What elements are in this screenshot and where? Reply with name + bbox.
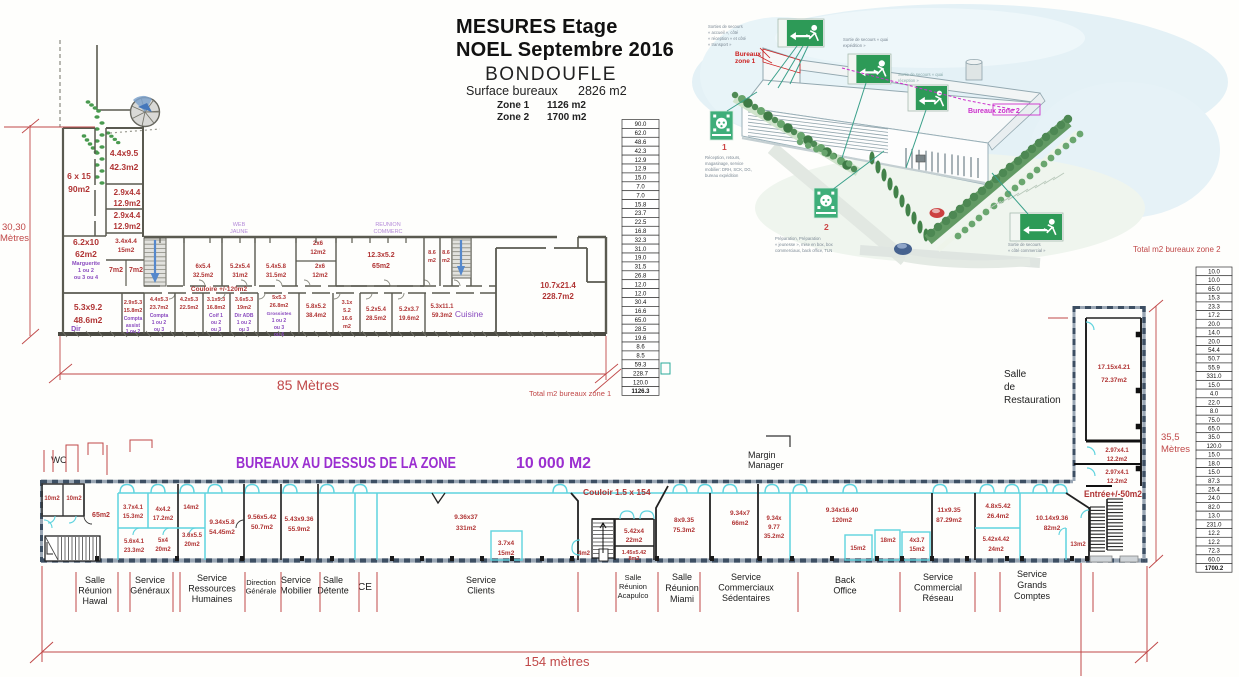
svg-text:5.8x5.2: 5.8x5.2 — [306, 304, 327, 310]
svg-text:Service: Service — [135, 575, 165, 585]
svg-text:120m2: 120m2 — [832, 517, 853, 524]
svg-text:17.2: 17.2 — [1208, 313, 1220, 319]
svg-text:Réunion: Réunion — [619, 582, 647, 591]
svg-text:50.7: 50.7 — [1208, 357, 1220, 363]
svg-text:15.8m2: 15.8m2 — [124, 308, 143, 314]
svg-text:20m2: 20m2 — [184, 542, 200, 548]
svg-text:6x5.4: 6x5.4 — [195, 264, 211, 270]
svg-text:Service: Service — [923, 572, 953, 582]
svg-text:8.0: 8.0 — [1210, 409, 1219, 415]
svg-text:7m2: 7m2 — [109, 267, 123, 274]
svg-text:1700 m2: 1700 m2 — [547, 112, 587, 123]
svg-text:2826 m2: 2826 m2 — [578, 84, 627, 98]
svg-text:5.4x5.8: 5.4x5.8 — [266, 264, 287, 270]
svg-text:15.0: 15.0 — [635, 176, 647, 182]
svg-text:12.9m2: 12.9m2 — [113, 199, 141, 208]
svg-text:4m2: 4m2 — [578, 551, 591, 557]
svg-text:8.6: 8.6 — [442, 250, 450, 256]
svg-text:2.97x4.1: 2.97x4.1 — [1105, 448, 1129, 454]
svg-text:65.0: 65.0 — [635, 318, 647, 324]
svg-text:16.8: 16.8 — [635, 229, 647, 235]
svg-text:ou 3: ou 3 — [211, 327, 221, 333]
svg-text:5.2x3.7: 5.2x3.7 — [399, 307, 420, 313]
svg-text:Service: Service — [1017, 569, 1047, 579]
svg-text:19.6: 19.6 — [635, 336, 647, 342]
svg-text:2.9x4.4: 2.9x4.4 — [114, 188, 141, 197]
svg-text:m2: m2 — [442, 258, 450, 264]
svg-text:9.34x: 9.34x — [766, 516, 782, 522]
svg-text:1126.3: 1126.3 — [631, 389, 650, 395]
svg-text:ou 3: ou 3 — [239, 327, 249, 333]
svg-text:15.3: 15.3 — [1208, 296, 1220, 302]
svg-text:13m2: 13m2 — [1070, 542, 1086, 548]
svg-text:Clients: Clients — [467, 586, 495, 596]
svg-text:zone 1: zone 1 — [735, 58, 756, 65]
svg-text:65.0: 65.0 — [1208, 427, 1220, 433]
svg-text:« réception » et côté: « réception » et côté — [708, 36, 747, 41]
svg-text:magasinage, service: magasinage, service — [705, 161, 744, 166]
svg-text:Mètres: Mètres — [1161, 444, 1190, 455]
svg-text:7.0: 7.0 — [636, 185, 645, 191]
svg-text:32.5m2: 32.5m2 — [193, 273, 214, 279]
svg-text:12.9: 12.9 — [635, 167, 647, 173]
svg-text:30,30: 30,30 — [2, 222, 26, 233]
svg-text:10.0: 10.0 — [1208, 278, 1220, 284]
svg-text:16.8m2: 16.8m2 — [207, 305, 226, 311]
svg-text:bureau expédition: bureau expédition — [705, 173, 739, 178]
svg-text:9.56x5.42: 9.56x5.42 — [248, 514, 277, 521]
svg-text:31.5m2: 31.5m2 — [266, 273, 287, 279]
svg-text:14.0: 14.0 — [1208, 331, 1220, 337]
svg-text:Couloire +/-120m2: Couloire +/-120m2 — [191, 286, 248, 293]
svg-text:16.6: 16.6 — [342, 316, 353, 322]
svg-text:Total m2 bureaux zone 2: Total m2 bureaux zone 2 — [1133, 245, 1221, 254]
svg-text:Salle: Salle — [1004, 369, 1027, 380]
svg-text:WEB: WEB — [233, 222, 246, 228]
svg-text:2x6: 2x6 — [313, 241, 324, 247]
svg-text:NOEL Septembre 2016: NOEL Septembre 2016 — [456, 39, 674, 61]
svg-text:Mobilier: Mobilier — [280, 586, 312, 596]
svg-text:23.7: 23.7 — [635, 211, 647, 217]
svg-text:3.1x5.3: 3.1x5.3 — [207, 297, 225, 303]
svg-text:COMMERC: COMMERC — [373, 229, 402, 235]
svg-text:ou 3 ou 4: ou 3 ou 4 — [74, 275, 99, 281]
svg-text:87.29m2: 87.29m2 — [936, 517, 962, 524]
svg-text:12m2: 12m2 — [312, 273, 328, 279]
svg-text:15m2: 15m2 — [850, 546, 866, 552]
svg-text:Réception, retours,: Réception, retours, — [705, 155, 740, 160]
svg-text:20.0: 20.0 — [1208, 339, 1220, 345]
svg-text:4.0: 4.0 — [1210, 392, 1219, 398]
svg-text:Réunion: Réunion — [78, 586, 112, 596]
svg-text:82m2: 82m2 — [1044, 525, 1061, 532]
svg-text:3.7x4.1: 3.7x4.1 — [123, 505, 144, 511]
svg-text:15.8: 15.8 — [635, 202, 647, 208]
svg-text:54.4: 54.4 — [1208, 348, 1220, 354]
svg-text:14m2: 14m2 — [183, 505, 199, 511]
svg-text:18m2: 18m2 — [880, 538, 896, 544]
svg-text:1 ou 2: 1 ou 2 — [272, 318, 287, 324]
svg-text:2: 2 — [824, 222, 829, 232]
svg-text:Grands: Grands — [1017, 580, 1047, 590]
svg-text:Back: Back — [835, 575, 856, 585]
svg-text:8m2: 8m2 — [628, 556, 639, 562]
svg-text:1700.2: 1700.2 — [1205, 566, 1224, 572]
svg-text:22.0: 22.0 — [1208, 400, 1220, 406]
svg-text:9.36x37: 9.36x37 — [454, 514, 478, 521]
svg-text:30.4: 30.4 — [635, 300, 647, 306]
svg-text:54.45m2: 54.45m2 — [209, 529, 235, 536]
svg-text:28.5m2: 28.5m2 — [366, 316, 387, 322]
svg-text:120.0: 120.0 — [633, 380, 649, 386]
svg-text:90m2: 90m2 — [68, 184, 90, 194]
svg-text:23.3m2: 23.3m2 — [124, 548, 145, 554]
svg-text:Zone 2: Zone 2 — [497, 112, 530, 123]
svg-text:1 ou 2: 1 ou 2 — [152, 320, 167, 326]
svg-text:Dir: Dir — [71, 326, 81, 333]
svg-text:75.0: 75.0 — [1208, 418, 1220, 424]
svg-text:59.3m2: 59.3m2 — [432, 313, 453, 319]
svg-text:Préparation, Préparation: Préparation, Préparation — [775, 236, 821, 241]
svg-text:4x3.7: 4x3.7 — [909, 538, 925, 544]
svg-text:Service: Service — [466, 575, 496, 585]
svg-text:Salle: Salle — [85, 575, 105, 585]
svg-text:5.3x11.1: 5.3x11.1 — [430, 304, 454, 310]
svg-text:48.6m2: 48.6m2 — [74, 315, 103, 325]
svg-text:Généraux: Généraux — [130, 586, 170, 596]
svg-text:9.34x5.8: 9.34x5.8 — [209, 519, 235, 526]
svg-text:Salle: Salle — [323, 575, 343, 585]
svg-text:32.3: 32.3 — [635, 238, 647, 244]
svg-text:31m2: 31m2 — [232, 273, 248, 279]
svg-text:5.43x9.36: 5.43x9.36 — [285, 516, 314, 523]
svg-text:12.2m2: 12.2m2 — [1107, 457, 1128, 463]
svg-text:12m2: 12m2 — [310, 250, 326, 256]
svg-text:9.77: 9.77 — [768, 525, 780, 531]
svg-text:20m2: 20m2 — [155, 547, 171, 553]
svg-text:BUREAUX AU DESSUS DE LA ZONE: BUREAUX AU DESSUS DE LA ZONE — [236, 455, 456, 472]
svg-text:15m2: 15m2 — [909, 547, 925, 553]
svg-text:Restauration: Restauration — [1004, 395, 1061, 406]
svg-text:Comptes: Comptes — [1014, 591, 1051, 601]
svg-text:31.0: 31.0 — [635, 247, 647, 253]
svg-text:MESURES Etage: MESURES Etage — [456, 16, 618, 38]
svg-text:4.4x5.3: 4.4x5.3 — [150, 297, 168, 303]
svg-text:6 x 15: 6 x 15 — [67, 171, 91, 181]
svg-text:31.5: 31.5 — [635, 265, 647, 271]
svg-text:11x9.35: 11x9.35 — [937, 507, 961, 514]
svg-text:19.0: 19.0 — [635, 256, 647, 262]
svg-text:48.6: 48.6 — [635, 140, 647, 146]
svg-text:17.15x4.21: 17.15x4.21 — [1098, 364, 1131, 371]
svg-text:5.2x5.4: 5.2x5.4 — [366, 307, 387, 313]
svg-text:90.0: 90.0 — [635, 122, 647, 128]
svg-text:3.7x4: 3.7x4 — [498, 540, 515, 547]
svg-text:15m2: 15m2 — [118, 247, 135, 254]
svg-text:20.0: 20.0 — [1208, 322, 1220, 328]
svg-text:1: 1 — [722, 142, 727, 152]
svg-text:Humaines: Humaines — [192, 594, 233, 604]
svg-text:3.6x5.5: 3.6x5.5 — [182, 533, 203, 539]
svg-text:3.1x: 3.1x — [342, 300, 354, 306]
svg-text:« accueil », côté: « accueil », côté — [708, 30, 739, 35]
svg-text:26.4m2: 26.4m2 — [987, 513, 1009, 520]
svg-text:8.5: 8.5 — [636, 354, 645, 360]
svg-text:2.9x4.4: 2.9x4.4 — [114, 211, 141, 220]
svg-text:Entrée+/-50m2: Entrée+/-50m2 — [1084, 489, 1142, 499]
svg-text:Surface bureaux: Surface bureaux — [466, 84, 558, 98]
svg-text:23.3: 23.3 — [1208, 304, 1220, 310]
svg-text:Coif 1: Coif 1 — [209, 313, 223, 319]
svg-text:9.34x7: 9.34x7 — [730, 510, 750, 517]
svg-text:10 000 M2: 10 000 M2 — [516, 455, 591, 472]
svg-text:82.0: 82.0 — [1208, 505, 1220, 511]
svg-text:331m2: 331m2 — [456, 525, 477, 532]
svg-text:55.9: 55.9 — [1208, 365, 1220, 371]
svg-text:Mètres: Mètres — [0, 233, 29, 244]
svg-text:228.7: 228.7 — [633, 371, 649, 377]
svg-text:8.6: 8.6 — [636, 345, 645, 351]
svg-text:3.4x4.4: 3.4x4.4 — [115, 238, 137, 245]
svg-text:16.6: 16.6 — [635, 309, 647, 315]
svg-text:Sortie de secours « quai: Sortie de secours « quai — [898, 72, 943, 77]
svg-text:Sortie de secours: Sortie de secours — [1008, 242, 1041, 247]
svg-text:Générale: Générale — [246, 587, 277, 596]
svg-text:Compta: Compta — [124, 316, 143, 322]
svg-text:12.2: 12.2 — [1208, 540, 1220, 546]
svg-text:75.3m2: 75.3m2 — [673, 527, 695, 534]
svg-text:Couloir 1.5 x 154: Couloir 1.5 x 154 — [583, 487, 651, 497]
svg-text:22.5m2: 22.5m2 — [180, 305, 199, 311]
svg-text:65.0: 65.0 — [1208, 287, 1220, 293]
svg-text:Office: Office — [833, 586, 856, 596]
svg-text:22.5: 22.5 — [635, 220, 647, 226]
svg-text:2x6: 2x6 — [315, 264, 326, 270]
svg-text:55.9m2: 55.9m2 — [288, 526, 310, 533]
svg-text:Sortie de secours « quai: Sortie de secours « quai — [843, 37, 888, 42]
svg-text:Cuisine: Cuisine — [455, 309, 484, 319]
svg-text:7m2: 7m2 — [129, 267, 143, 274]
svg-text:62.0: 62.0 — [635, 131, 647, 137]
svg-text:Bureaux: Bureaux — [735, 51, 761, 58]
svg-text:CE: CE — [358, 582, 372, 593]
svg-text:26.8: 26.8 — [635, 274, 647, 280]
svg-text:50.7m2: 50.7m2 — [251, 524, 273, 531]
svg-text:42.3: 42.3 — [635, 149, 647, 155]
svg-text:10.7x21.4: 10.7x21.4 — [540, 281, 576, 290]
svg-text:4x4.2: 4x4.2 — [155, 507, 171, 513]
svg-text:ou 6: ou 6 — [274, 332, 284, 338]
svg-text:6.2x10: 6.2x10 — [73, 237, 99, 247]
svg-text:5x5.3: 5x5.3 — [272, 295, 286, 301]
svg-text:ou 3: ou 3 — [274, 325, 284, 331]
svg-text:24m2: 24m2 — [988, 547, 1004, 553]
svg-text:m2: m2 — [343, 324, 351, 330]
svg-text:Service: Service — [281, 575, 311, 585]
svg-text:Acapulco: Acapulco — [618, 591, 649, 600]
svg-text:17.2m2: 17.2m2 — [153, 516, 174, 522]
svg-text:Grossistes: Grossistes — [267, 311, 292, 317]
svg-text:Sorties de secours: Sorties de secours — [708, 24, 743, 29]
svg-text:m2: m2 — [428, 258, 436, 264]
svg-text:35,5: 35,5 — [1161, 432, 1180, 443]
svg-text:Réunion: Réunion — [665, 583, 699, 593]
svg-text:Détente: Détente — [317, 586, 349, 596]
svg-text:5.42x4.42: 5.42x4.42 — [983, 537, 1010, 543]
svg-text:12.9m2: 12.9m2 — [113, 222, 141, 231]
svg-text:72.3: 72.3 — [1208, 549, 1220, 555]
svg-text:22m2: 22m2 — [626, 537, 643, 544]
svg-text:ou 3: ou 3 — [154, 327, 164, 333]
svg-text:ou 2: ou 2 — [211, 320, 221, 326]
svg-text:19m2: 19m2 — [237, 305, 251, 311]
svg-text:BONDOUFLE: BONDOUFLE — [485, 64, 617, 85]
svg-text:Margin: Margin — [748, 450, 776, 460]
svg-text:66m2: 66m2 — [732, 520, 749, 527]
svg-text:Commerciaux: Commerciaux — [718, 583, 774, 593]
svg-text:35.0: 35.0 — [1208, 435, 1220, 441]
svg-text:15.0: 15.0 — [1208, 453, 1220, 459]
svg-text:5.2: 5.2 — [343, 308, 351, 314]
svg-text:65m2: 65m2 — [92, 512, 110, 519]
svg-text:Dir ADB: Dir ADB — [235, 313, 254, 319]
svg-text:15m2: 15m2 — [498, 550, 515, 557]
svg-text:4.4x9.5: 4.4x9.5 — [110, 148, 139, 158]
svg-text:15.0: 15.0 — [1208, 470, 1220, 476]
svg-text:12.2: 12.2 — [1208, 531, 1220, 537]
svg-text:42.3m2: 42.3m2 — [110, 162, 139, 172]
svg-text:4.8x5.42: 4.8x5.42 — [985, 503, 1011, 510]
svg-text:2.9x5.3: 2.9x5.3 — [124, 300, 142, 306]
svg-text:9.34x16.40: 9.34x16.40 — [826, 507, 859, 514]
svg-text:18.0: 18.0 — [1208, 461, 1220, 467]
svg-text:Salle: Salle — [672, 572, 692, 582]
svg-text:1 ou 2: 1 ou 2 — [237, 320, 252, 326]
svg-text:2.97x4.1: 2.97x4.1 — [1105, 470, 1129, 476]
svg-text:120.0: 120.0 — [1206, 444, 1222, 450]
svg-text:Miami: Miami — [670, 594, 694, 604]
svg-text:85 Mètres: 85 Mètres — [277, 377, 339, 393]
svg-text:3.6x5.3: 3.6x5.3 — [235, 297, 253, 303]
svg-text:12.9: 12.9 — [635, 158, 647, 164]
svg-text:12.3x5.2: 12.3x5.2 — [367, 252, 394, 259]
svg-text:Service: Service — [731, 572, 761, 582]
svg-text:25.4: 25.4 — [1208, 488, 1220, 494]
svg-text:5.6x4.1: 5.6x4.1 — [124, 539, 145, 545]
svg-text:13.0: 13.0 — [1208, 514, 1220, 520]
svg-text:15.3m2: 15.3m2 — [123, 514, 144, 520]
svg-text:Ressources: Ressources — [188, 584, 236, 594]
svg-text:72.37m2: 72.37m2 — [1101, 377, 1127, 384]
svg-text:87.3: 87.3 — [1208, 479, 1220, 485]
svg-text:de: de — [1004, 382, 1016, 393]
svg-text:REUNION: REUNION — [375, 222, 400, 228]
svg-text:7.0: 7.0 — [636, 193, 645, 199]
svg-text:1126 m2: 1126 m2 — [547, 100, 586, 111]
svg-text:Marguerite: Marguerite — [72, 261, 100, 267]
svg-text:mobilier: DRH, SCK, DG,: mobilier: DRH, SCK, DG, — [705, 167, 752, 172]
svg-text:5x4: 5x4 — [158, 538, 169, 544]
svg-text:59.3: 59.3 — [635, 363, 647, 369]
svg-text:Manager: Manager — [748, 460, 784, 470]
svg-text:1 ou 2: 1 ou 2 — [78, 268, 94, 274]
svg-text:15.0: 15.0 — [1208, 383, 1220, 389]
svg-text:331.0: 331.0 — [1206, 374, 1222, 380]
svg-text:12.0: 12.0 — [635, 282, 647, 288]
svg-text:231.0: 231.0 — [1206, 522, 1222, 528]
svg-text:Réseau: Réseau — [922, 593, 953, 603]
svg-text:24.0: 24.0 — [1208, 496, 1220, 502]
svg-text:4.2x5.3: 4.2x5.3 — [180, 297, 198, 303]
svg-text:expédition »: expédition » — [843, 43, 866, 48]
svg-text:« jeunesse », mise en box, box: « jeunesse », mise en box, box — [775, 242, 834, 247]
svg-text:38.4m2: 38.4m2 — [306, 313, 327, 319]
svg-text:12.0: 12.0 — [635, 291, 647, 297]
svg-text:35.2m2: 35.2m2 — [764, 534, 785, 540]
svg-text:5.2x5.4: 5.2x5.4 — [230, 264, 251, 270]
svg-text:28.5: 28.5 — [635, 327, 647, 333]
svg-text:Commercial: Commercial — [914, 583, 962, 593]
svg-text:10.14x9.36: 10.14x9.36 — [1036, 515, 1069, 522]
svg-text:Service: Service — [197, 573, 227, 583]
svg-text:Zone 1: Zone 1 — [497, 100, 530, 111]
svg-text:Hawal: Hawal — [82, 596, 107, 606]
svg-text:JAUNE: JAUNE — [230, 229, 248, 235]
svg-text:8.6: 8.6 — [428, 250, 436, 256]
svg-text:Compta: Compta — [150, 313, 169, 319]
svg-text:10m2: 10m2 — [44, 496, 60, 502]
svg-text:5.42x4: 5.42x4 — [624, 528, 644, 535]
svg-text:60.0: 60.0 — [1208, 557, 1220, 563]
svg-text:commerciaux, back office, TLN: commerciaux, back office, TLN — [775, 248, 832, 253]
svg-text:Total m2 bureaux zone 1: Total m2 bureaux zone 1 — [529, 389, 611, 398]
svg-text:12.2m2: 12.2m2 — [1107, 479, 1128, 485]
svg-text:19.6m2: 19.6m2 — [399, 316, 420, 322]
svg-text:5.3x9.2: 5.3x9.2 — [74, 302, 103, 312]
svg-text:« transport »: « transport » — [708, 42, 732, 47]
svg-text:10m2: 10m2 — [66, 496, 82, 502]
svg-text:réception »: réception » — [898, 78, 919, 83]
svg-text:23.7m2: 23.7m2 — [150, 305, 169, 311]
svg-text:« côté commercial »: « côté commercial » — [1008, 248, 1046, 253]
svg-text:65m2: 65m2 — [372, 263, 390, 270]
svg-text:Salle: Salle — [625, 573, 642, 582]
svg-text:8x9.35: 8x9.35 — [674, 517, 694, 524]
svg-text:Sédentaires: Sédentaires — [722, 593, 771, 603]
svg-text:26.8m2: 26.8m2 — [270, 303, 289, 309]
svg-text:154 mètres: 154 mètres — [524, 654, 590, 669]
svg-text:228.7m2: 228.7m2 — [542, 292, 574, 301]
svg-text:1 ou 2: 1 ou 2 — [126, 329, 141, 335]
svg-text:10.0: 10.0 — [1208, 270, 1220, 276]
svg-text:Bureaux zone 2: Bureaux zone 2 — [968, 108, 1020, 115]
svg-text:62m2: 62m2 — [75, 249, 97, 259]
